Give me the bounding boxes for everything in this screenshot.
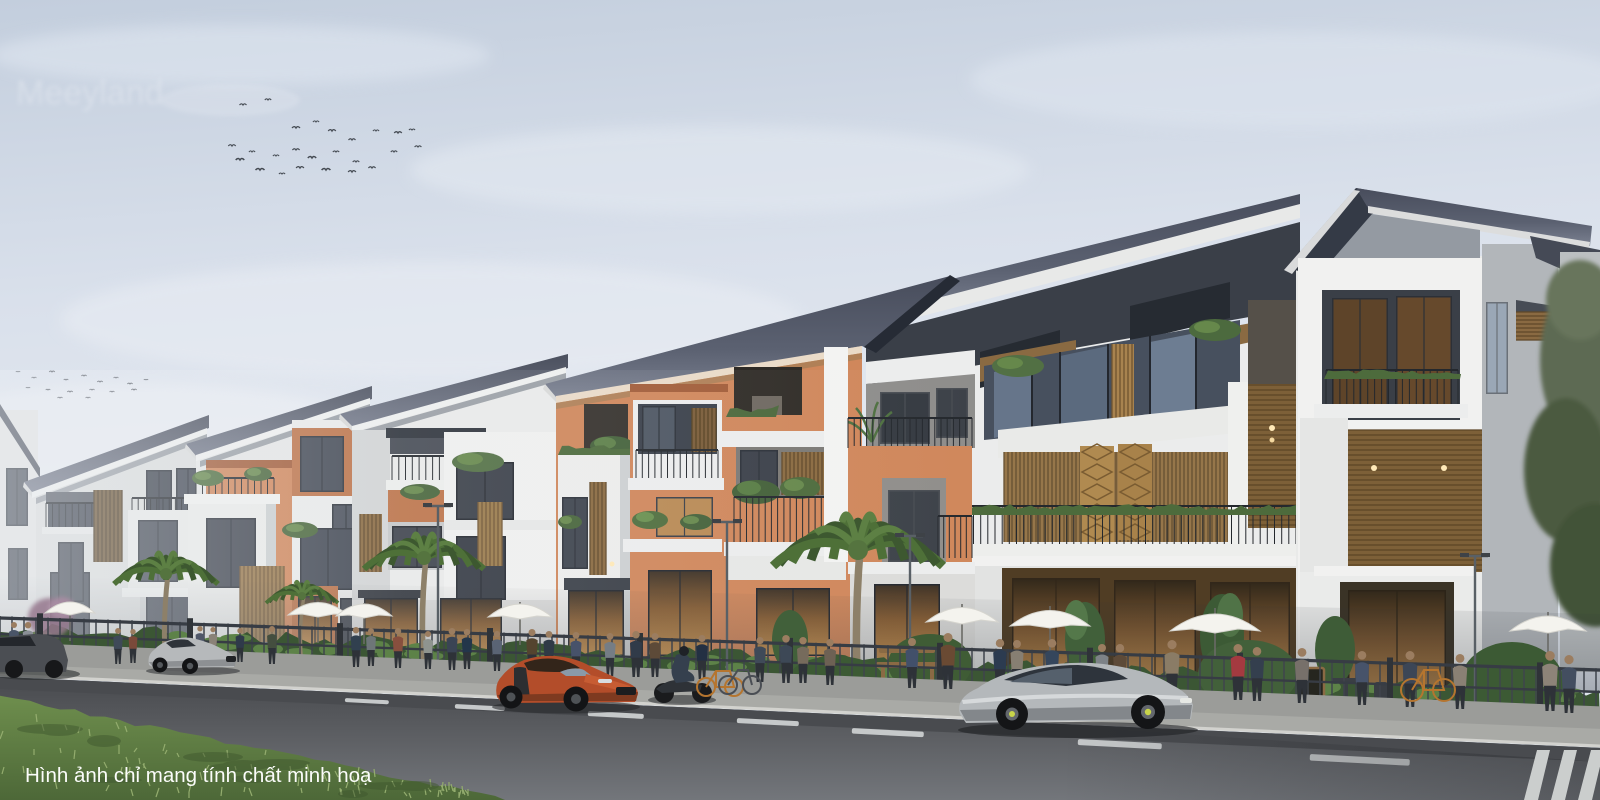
svg-text:Meeyland: Meeyland [16, 74, 163, 112]
svg-text:Hình ảnh chỉ mang tính chất mi: Hình ảnh chỉ mang tính chất minh hoạ [25, 764, 372, 787]
